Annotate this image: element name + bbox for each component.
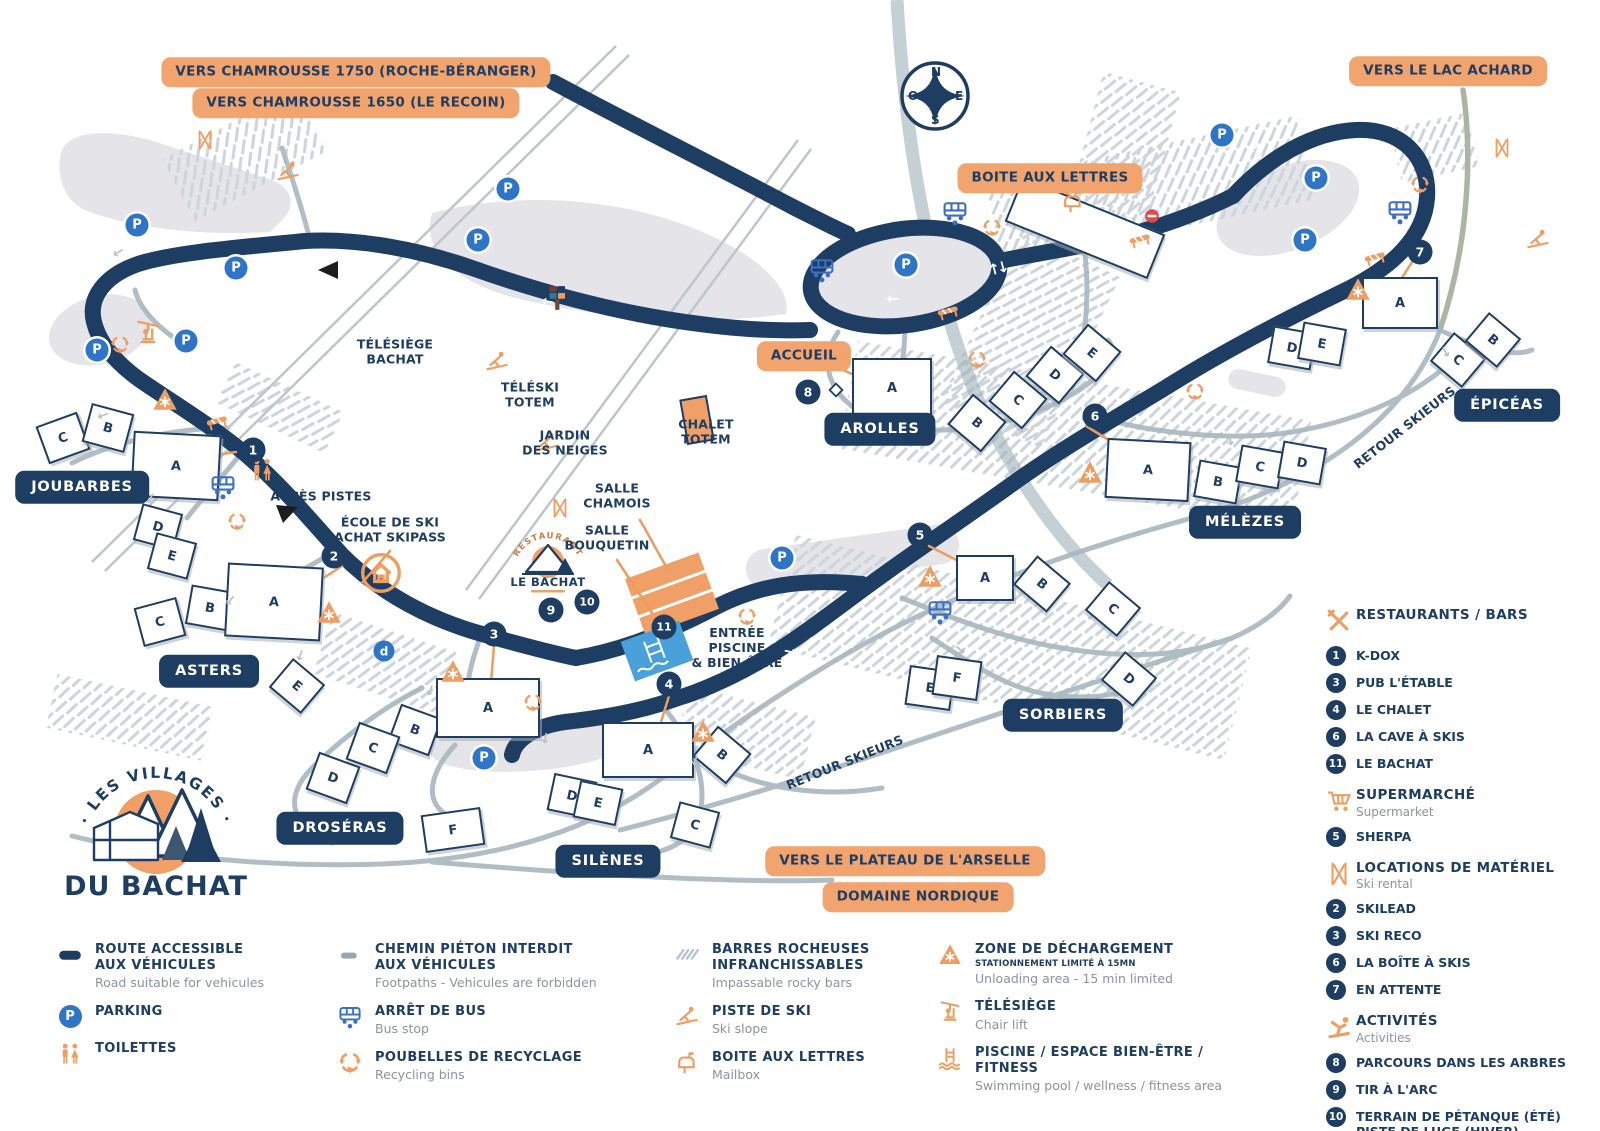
parking-marker: P xyxy=(467,229,490,252)
marker-2: 2 xyxy=(322,544,347,569)
building-letter: C xyxy=(56,429,70,446)
place-label: JARDIN DES NEIGES xyxy=(522,428,608,458)
path-arrow: → xyxy=(1222,433,1238,447)
poi-number: 7 xyxy=(1326,980,1346,1000)
parking-marker: P xyxy=(1211,124,1234,147)
building-letter: D xyxy=(1046,366,1064,384)
skier-icon xyxy=(675,1005,699,1033)
legend-subtitle: Ski slope xyxy=(712,1022,811,1036)
direction-banner: ACCUEIL xyxy=(757,341,851,371)
road-arrow: ← xyxy=(541,297,555,308)
poi-item: 2SKILEAD xyxy=(1326,899,1594,919)
poi-section: RESTAURANTS / BARS1K-DOX3PUB L'ÉTABLE4LE… xyxy=(1322,608,1594,774)
bus-icon xyxy=(927,599,953,625)
direction-banner: VERS CHAMROUSSE 1750 (ROCHE-BÉRANGER) xyxy=(161,57,550,87)
parking-marker: P xyxy=(175,330,198,353)
poi-number: 6 xyxy=(1326,953,1346,973)
poi-section: ACTIVITÉSActivities8PARCOURS DANS LES AR… xyxy=(1322,1014,1594,1131)
restaurant-icon xyxy=(1326,608,1352,638)
building-letter: B xyxy=(713,746,730,764)
poi-label: K-DOX xyxy=(1356,646,1400,664)
direction-banner: VERS LE LAC ACHARD xyxy=(1349,56,1547,86)
legend-title: PISCINE / ESPACE BIEN-ÊTRE / FITNESS xyxy=(975,1045,1270,1076)
legend-smallprint: STATIONNEMENT LIMITÉ À 15MN xyxy=(975,959,1173,969)
legend-item: ZONE DE DÉCHARGEMENTSTATIONNEMENT LIMITÉ… xyxy=(925,942,1270,986)
poi-list: RESTAURANTS / BARS1K-DOX3PUB L'ÉTABLE4LE… xyxy=(1322,608,1594,1131)
legend-item: BOITE AUX LETTRESMailbox xyxy=(662,1050,927,1083)
marker-1: 1 xyxy=(241,438,266,463)
poi-item: 10TERRAIN DE PÉTANQUE (ÉTÉ) PISTE DE LUG… xyxy=(1326,1107,1594,1131)
building-letter: A xyxy=(1143,462,1154,478)
cart-icon xyxy=(1326,788,1352,818)
legend-subtitle: Unloading area - 15 min limited xyxy=(975,972,1173,986)
unload-icon xyxy=(1345,277,1371,303)
poi-item: 11LE BACHAT xyxy=(1326,754,1594,774)
direction-banner: DOMAINE NORDIQUE xyxy=(823,882,1014,912)
poi-item: 9TIR À L'ARC xyxy=(1326,1080,1594,1100)
building-A: A xyxy=(602,722,694,778)
building-A: A xyxy=(1362,277,1438,329)
road-arrow: ← xyxy=(887,294,900,303)
legend-title: BOITE AUX LETTRES xyxy=(712,1050,865,1066)
marker-9: 9 xyxy=(539,598,564,623)
poi-label: TERRAIN DE PÉTANQUE (ÉTÉ) PISTE DE LUGE … xyxy=(1356,1107,1561,1131)
poi-label: TIR À L'ARC xyxy=(1356,1080,1437,1098)
legend-subtitle: Swimming pool / wellness / fitness area xyxy=(975,1079,1270,1093)
building-letter: A xyxy=(171,458,182,474)
poi-number: 4 xyxy=(1326,700,1346,720)
building-letter: C xyxy=(153,614,166,631)
skier-icon xyxy=(485,350,509,374)
building-D: D xyxy=(1277,440,1327,485)
road-arrow: → xyxy=(783,646,797,658)
parking-marker: P xyxy=(771,547,794,570)
poi-label: PARCOURS DANS LES ARBRES xyxy=(1356,1053,1566,1071)
logo-name: DU BACHAT xyxy=(64,871,248,902)
legend-title: BARRES ROCHEUSES INFRANCHISSABLES xyxy=(712,942,870,973)
marker-5: 5 xyxy=(908,523,933,548)
unload-icon xyxy=(1077,460,1103,486)
building-letter: D xyxy=(1295,455,1308,472)
recycle-icon xyxy=(982,218,1002,238)
path-arrow: → xyxy=(537,731,553,745)
ski-village-map: N S E O · LES VILLAGES · DU BA xyxy=(0,0,1600,1131)
section-title: SUPERMARCHÉ xyxy=(1356,788,1475,804)
bus-icon xyxy=(338,1005,362,1033)
bus-icon xyxy=(942,200,968,226)
legend-subtitle: Impassable rocky bars xyxy=(712,976,870,990)
building-letter: B xyxy=(1484,331,1501,349)
marker-10: 10 xyxy=(575,590,600,615)
gate-icon xyxy=(205,410,229,434)
poi-number: 5 xyxy=(1326,827,1346,847)
building-letter: B xyxy=(968,414,985,432)
unload-icon xyxy=(917,564,943,590)
direction-banner: BOITE AUX LETTRES xyxy=(957,163,1142,193)
mailbox-icon xyxy=(675,1051,699,1079)
chairlift-icon xyxy=(134,319,162,347)
legend-subtitle: Mailbox xyxy=(712,1068,865,1082)
skis-icon xyxy=(1326,861,1352,891)
legend-title: TÉLÉSIÈGE xyxy=(975,999,1056,1015)
building-letter: D xyxy=(1285,340,1298,357)
parking-marker: P xyxy=(1294,229,1317,252)
legend-item: PPARKING xyxy=(45,1004,320,1028)
marker-6: 6 xyxy=(1083,404,1108,429)
minilogo-name: LE BACHAT xyxy=(510,575,585,589)
building-letter: A xyxy=(980,571,990,586)
legend-title: TOILETTES xyxy=(95,1041,177,1057)
recycle-icon xyxy=(227,512,247,532)
compass-south: S xyxy=(931,113,940,127)
legend-item: ARRÊT DE BUSBus stop xyxy=(325,1004,625,1037)
building-letter: B xyxy=(408,721,422,738)
bus-icon xyxy=(210,474,236,500)
unload-icon xyxy=(152,387,178,413)
road-arrow: ← xyxy=(1248,141,1263,154)
place-label: ENTRÉE PISCINE & BIEN-ÊTRE xyxy=(691,626,782,670)
poi-label: SKI RECO xyxy=(1356,926,1422,944)
skis-icon xyxy=(1491,137,1513,159)
rocks-icon xyxy=(675,943,699,971)
parking-marker: P xyxy=(126,214,149,237)
legend-column: CHEMIN PIÉTON INTERDIT AUX VÉHICULESFoot… xyxy=(325,942,625,1096)
poi-item: 4LE CHALET xyxy=(1326,700,1594,720)
poi-item: 7EN ATTENTE xyxy=(1326,980,1594,1000)
unload-icon xyxy=(690,719,716,745)
poi-label: SHERPA xyxy=(1356,827,1411,845)
village-label: ÉPICÉAS xyxy=(1454,389,1560,422)
legend-subtitle: Bus stop xyxy=(375,1022,486,1036)
building-A: A xyxy=(852,358,932,418)
parking-icon: P xyxy=(59,1005,82,1028)
poi-number: 3 xyxy=(1326,673,1346,693)
legend-subtitle: Chair lift xyxy=(975,1018,1056,1032)
building-E: E xyxy=(1297,321,1347,366)
parking-marker: P xyxy=(225,257,248,280)
compass-east: E xyxy=(955,89,963,103)
poi-item: 3SKI RECO xyxy=(1326,926,1594,946)
poi-number: 8 xyxy=(1326,1053,1346,1073)
poi-label: LE CHALET xyxy=(1356,700,1431,718)
village-label: JOUBARBES xyxy=(15,471,149,504)
poi-number: 1 xyxy=(1326,646,1346,666)
building-letter: E xyxy=(289,677,305,694)
building-letter: A xyxy=(269,594,280,610)
legend-item: PISCINE / ESPACE BIEN-ÊTRE / FITNESSSwim… xyxy=(925,1045,1270,1094)
building-letter: A xyxy=(1395,296,1405,311)
building-F: F xyxy=(931,655,982,701)
recycle-icon xyxy=(523,693,543,713)
school-icon xyxy=(360,552,402,594)
building-letter: A xyxy=(643,743,653,758)
poi-number: 10 xyxy=(1326,1107,1346,1127)
bus-icon xyxy=(809,257,835,283)
toilets-icon xyxy=(58,1042,82,1070)
poi-number: 11 xyxy=(1326,754,1346,774)
section-subtitle: Supermarket xyxy=(1356,805,1475,819)
building-letter: C xyxy=(688,817,701,834)
mailbox-icon xyxy=(1061,190,1085,214)
direction-banner: VERS LE PLATEAU DE L'ARSELLE xyxy=(765,846,1045,876)
poi-number: 2 xyxy=(1326,899,1346,919)
marker-d: d xyxy=(374,641,395,662)
legend-title: ROUTE ACCESSIBLE AUX VÉHICULES xyxy=(95,942,264,973)
section-title: ACTIVITÉS xyxy=(1356,1014,1438,1030)
village-label: ASTERS xyxy=(159,655,259,688)
parking-marker: P xyxy=(1305,167,1328,190)
building-letter: A xyxy=(887,381,897,396)
parking-marker: P xyxy=(86,339,109,362)
recycle-icon xyxy=(110,335,130,355)
unload-icon xyxy=(316,600,342,626)
building-letter: C xyxy=(1254,459,1266,475)
place-label: SALLE BOUQUETIN xyxy=(564,523,649,553)
poi-label: PUB L'ÉTABLE xyxy=(1356,673,1453,691)
activity-icon xyxy=(1326,1014,1352,1044)
poi-item: 5SHERPA xyxy=(1326,827,1594,847)
section-subtitle: Activities xyxy=(1356,1031,1438,1045)
legend-item: ROUTE ACCESSIBLE AUX VÉHICULESRoad suita… xyxy=(45,942,320,991)
les-villages-du-bachat-logo: · LES VILLAGES · DU BACHAT xyxy=(58,740,253,905)
compass-north: N xyxy=(931,65,941,79)
legend-title: PARKING xyxy=(95,1004,163,1020)
poi-item: 3PUB L'ÉTABLE xyxy=(1326,673,1594,693)
place-label: CHALET TOTEM xyxy=(678,417,734,447)
building-A: A xyxy=(956,555,1014,601)
place-label: TÉLÉSKI TOTEM xyxy=(501,380,559,410)
unload-icon xyxy=(440,659,466,685)
marker-7: 7 xyxy=(1408,240,1433,265)
marker-11: 11 xyxy=(652,615,677,640)
building-letter: E xyxy=(1084,344,1100,361)
place-label: SALLE CHAMOIS xyxy=(583,481,650,511)
legend-title: ARRÊT DE BUS xyxy=(375,1004,486,1020)
poi-number: 3 xyxy=(1326,926,1346,946)
poi-number: 6 xyxy=(1326,727,1346,747)
legend-column: ZONE DE DÉCHARGEMENTSTATIONNEMENT LIMITÉ… xyxy=(925,942,1270,1107)
gate-icon xyxy=(936,300,960,324)
building-letter: E xyxy=(166,548,178,565)
road-icon xyxy=(58,943,82,971)
legend-item: PISTE DE SKISki slope xyxy=(662,1004,927,1037)
building-C: C xyxy=(1235,444,1285,489)
building-letter: F xyxy=(952,670,963,686)
gate-icon xyxy=(1128,228,1152,252)
building-letter: E xyxy=(592,795,604,812)
legend-item: TOILETTES xyxy=(45,1041,320,1070)
chairlift-icon xyxy=(938,1000,962,1028)
building-A: A xyxy=(224,563,324,642)
building-letter: C xyxy=(1105,600,1122,618)
poi-label: LE BACHAT xyxy=(1356,754,1433,772)
direction-banner: VERS CHAMROUSSE 1650 (LE RECOIN) xyxy=(192,88,519,118)
legend-column: ROUTE ACCESSIBLE AUX VÉHICULESRoad suita… xyxy=(45,942,320,1083)
parking-marker: P xyxy=(895,254,918,277)
unload-icon xyxy=(938,943,962,971)
poi-number: 9 xyxy=(1326,1080,1346,1100)
village-label: SILÈNES xyxy=(555,845,660,878)
marker-3: 3 xyxy=(482,622,507,647)
poi-section: LOCATIONS DE MATÉRIELSki rental2SKILEAD3… xyxy=(1322,861,1594,1001)
legend-title: CHEMIN PIÉTON INTERDIT AUX VÉHICULES xyxy=(375,942,597,973)
legend-subtitle: Recycling bins xyxy=(375,1068,582,1082)
skis-icon xyxy=(194,129,216,151)
section-title: LOCATIONS DE MATÉRIEL xyxy=(1356,861,1554,877)
legend-title: ZONE DE DÉCHARGEMENT xyxy=(975,942,1173,958)
place-label: ÉCOLE DE SKI ACHAT SKIPASS xyxy=(334,515,446,545)
compass-west: O xyxy=(908,89,918,103)
compass-rose: N S E O xyxy=(895,56,975,136)
poi-item: 6LA BOÎTE À SKIS xyxy=(1326,953,1594,973)
bus-icon xyxy=(1387,199,1413,225)
village-label: DROSÉRAS xyxy=(276,812,403,845)
pool-icon xyxy=(938,1046,962,1074)
place-label: TÉLÉSIÈGE BACHAT xyxy=(357,337,433,367)
poi-section: SUPERMARCHÉSupermarket5SHERPA xyxy=(1322,788,1594,847)
building-A: A xyxy=(1104,438,1191,502)
recycle-icon xyxy=(338,1051,362,1079)
recycle-icon xyxy=(967,350,987,370)
legend-column: BARRES ROCHEUSES INFRANCHISSABLESImpassa… xyxy=(662,942,927,1096)
parking-marker: P xyxy=(473,747,496,770)
building-letter: A xyxy=(483,701,493,716)
legend-title: POUBELLES DE RECYCLAGE xyxy=(375,1050,582,1066)
building-letter: F xyxy=(448,822,459,838)
poi-label: EN ATTENTE xyxy=(1356,980,1441,998)
recycle-icon xyxy=(1185,382,1205,402)
poi-item: 8PARCOURS DANS LES ARBRES xyxy=(1326,1053,1594,1073)
skis-icon xyxy=(549,497,571,519)
parking-marker: P xyxy=(497,178,520,201)
building-letter: C xyxy=(366,739,380,756)
legend-subtitle: Footpaths - Vehicules are forbidden xyxy=(375,976,597,990)
poi-label: LA BOÎTE À SKIS xyxy=(1356,953,1471,971)
legend-item: POUBELLES DE RECYCLAGERecycling bins xyxy=(325,1050,625,1083)
building-letter: B xyxy=(1212,474,1224,490)
gate-icon xyxy=(1363,246,1387,270)
legend-item: TÉLÉSIÈGEChair lift xyxy=(925,999,1270,1032)
marker-8: 8 xyxy=(796,380,821,405)
building-letter: D xyxy=(1120,670,1138,688)
village-label: SORBIERS xyxy=(1003,699,1123,732)
footpath-icon xyxy=(338,943,362,971)
building-letter: B xyxy=(1033,575,1050,593)
poi-item: 6LA CAVE À SKIS xyxy=(1326,727,1594,747)
legend-item: CHEMIN PIÉTON INTERDIT AUX VÉHICULESFoot… xyxy=(325,942,625,991)
building-letter: D xyxy=(325,769,340,787)
place-label: ACCÈS PISTES xyxy=(270,490,371,505)
section-title: RESTAURANTS / BARS xyxy=(1356,608,1528,624)
village-label: MÉLÈZES xyxy=(1189,506,1301,539)
poi-item: 1K-DOX xyxy=(1326,646,1594,666)
legend-subtitle: Road suitable for vehicules xyxy=(95,976,264,990)
building-letter: C xyxy=(1010,391,1027,409)
section-subtitle: Ski rental xyxy=(1356,877,1554,891)
legend-title: PISTE DE SKI xyxy=(712,1004,811,1020)
skier-icon xyxy=(276,160,300,184)
rocky-bars xyxy=(46,72,1480,780)
village-label: AROLLES xyxy=(824,413,935,446)
poi-label: SKILEAD xyxy=(1356,899,1416,917)
building-letter: E xyxy=(1316,336,1327,352)
poi-label: LA CAVE À SKIS xyxy=(1356,727,1465,745)
recycle-icon xyxy=(1410,175,1430,195)
noentry-icon xyxy=(1144,208,1160,224)
marker-4: 4 xyxy=(657,672,682,697)
skier-icon xyxy=(1526,228,1550,252)
building-letter: B xyxy=(204,600,216,616)
legend-item: BARRES ROCHEUSES INFRANCHISSABLESImpassa… xyxy=(662,942,927,991)
diamond-icon xyxy=(827,381,845,399)
